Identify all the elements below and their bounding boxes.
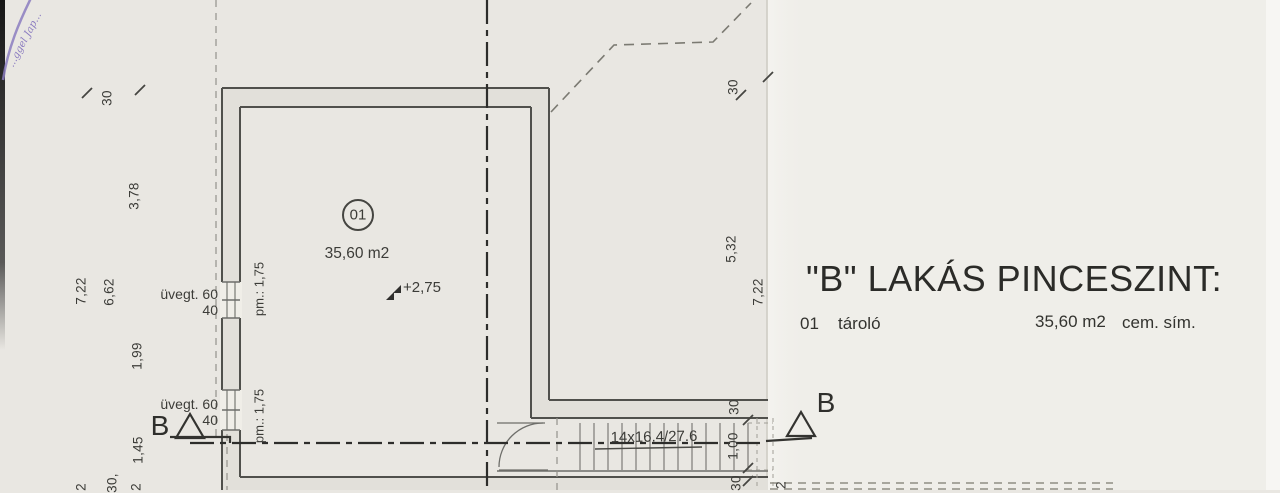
stair-dimension-label: 14x16.4/27.6 (610, 428, 697, 447)
legend-room-area: 35,60 m2 (1035, 312, 1106, 332)
parapet-label: pm.: 1,75 (252, 389, 267, 443)
dim-label: 5,32 (724, 235, 739, 262)
parapet-label: pm.: 1,75 (252, 262, 267, 316)
scanned-floor-plan: ...ggel Jap... 30 3,78 7,22 6,62 1,99 1,… (0, 0, 1280, 490)
dim-label: 7,22 (74, 277, 89, 304)
legend-title: "B" LAKÁS PINCESZINT: (806, 258, 1222, 300)
section-marker-letter: B (151, 410, 170, 442)
legend-room-finish: cem. sím. (1122, 313, 1196, 333)
paper-fold-highlight (768, 0, 808, 490)
window-size-label: 40 (196, 412, 218, 428)
level-value: +2,75 (403, 279, 441, 296)
dim-label: 1,99 (130, 342, 145, 369)
dim-label: 6,62 (102, 278, 117, 305)
legend-room-name: tároló (838, 314, 881, 334)
window-size-label: 40 (196, 302, 218, 318)
scan-edge-artifact (0, 0, 5, 350)
legend-room-number: 01 (800, 314, 819, 334)
dim-label: 7,22 (751, 278, 766, 305)
dim-label: 3,78 (127, 182, 142, 209)
dim-label: 2 (774, 481, 789, 489)
dim-label: 30 (726, 79, 741, 95)
floor-plan-drawing (0, 0, 1280, 490)
dim-label: 30 (100, 90, 115, 106)
room-area: 35,60 m2 (325, 245, 390, 263)
section-marker-letter: B (817, 387, 836, 419)
scan-right-edge (1266, 0, 1280, 490)
dim-label: 30 (729, 475, 744, 491)
dim-label: 30 (727, 399, 742, 415)
room-number: 01 (350, 207, 367, 224)
paper-right-panel (767, 0, 1280, 490)
dim-label: 1,00 (726, 432, 741, 459)
window-type-label: üvegt. 60 (150, 286, 218, 302)
dim-label: 1,45 (131, 436, 146, 463)
